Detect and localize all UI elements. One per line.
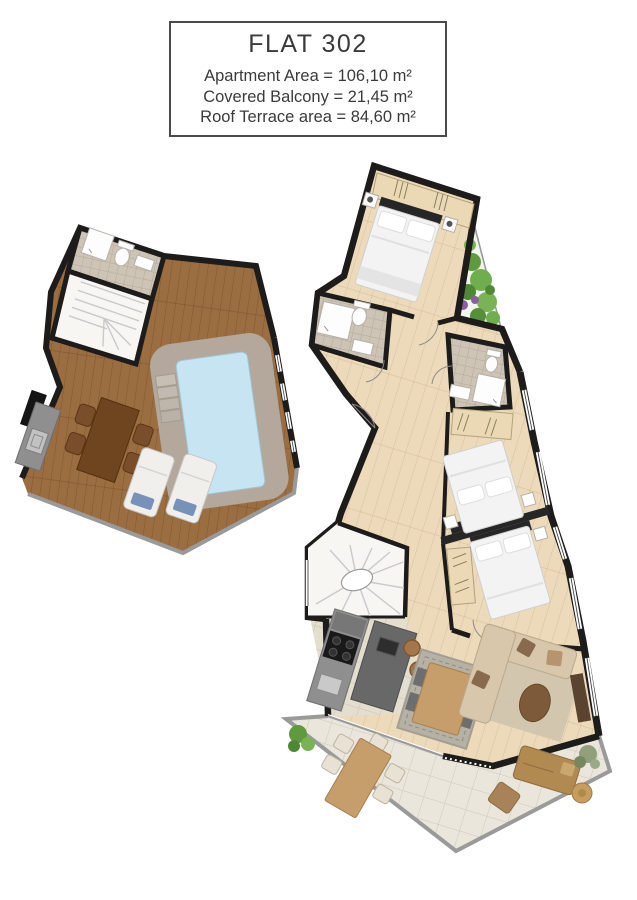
title-block: FLAT 302 Apartment Area = 106,10 m² Cove… [169, 21, 447, 137]
pool-area [147, 330, 291, 513]
floor-plan-page: FLAT 302 Apartment Area = 106,10 m² Cove… [0, 0, 637, 900]
apartment-plan [286, 166, 610, 851]
nightstand-icon [521, 492, 536, 507]
cushion-icon [546, 650, 563, 667]
roof-terrace-plan [8, 228, 297, 553]
apartment-area-line: Apartment Area = 106,10 m² [204, 66, 412, 87]
roof-terrace-line: Roof Terrace area = 84,60 m² [200, 107, 416, 128]
nightstand-icon [533, 526, 548, 541]
side-table-icon [578, 789, 586, 797]
bar-stool-icon [404, 640, 420, 656]
nightstand-icon [443, 515, 458, 530]
wardrobe-bedroom3 [447, 547, 476, 605]
wardrobe-bedroom2 [451, 408, 513, 439]
flat-title: FLAT 302 [248, 30, 367, 59]
shower-icon [317, 301, 355, 339]
covered-balcony-line: Covered Balcony = 21,45 m² [203, 87, 413, 108]
shower-icon [472, 374, 505, 407]
